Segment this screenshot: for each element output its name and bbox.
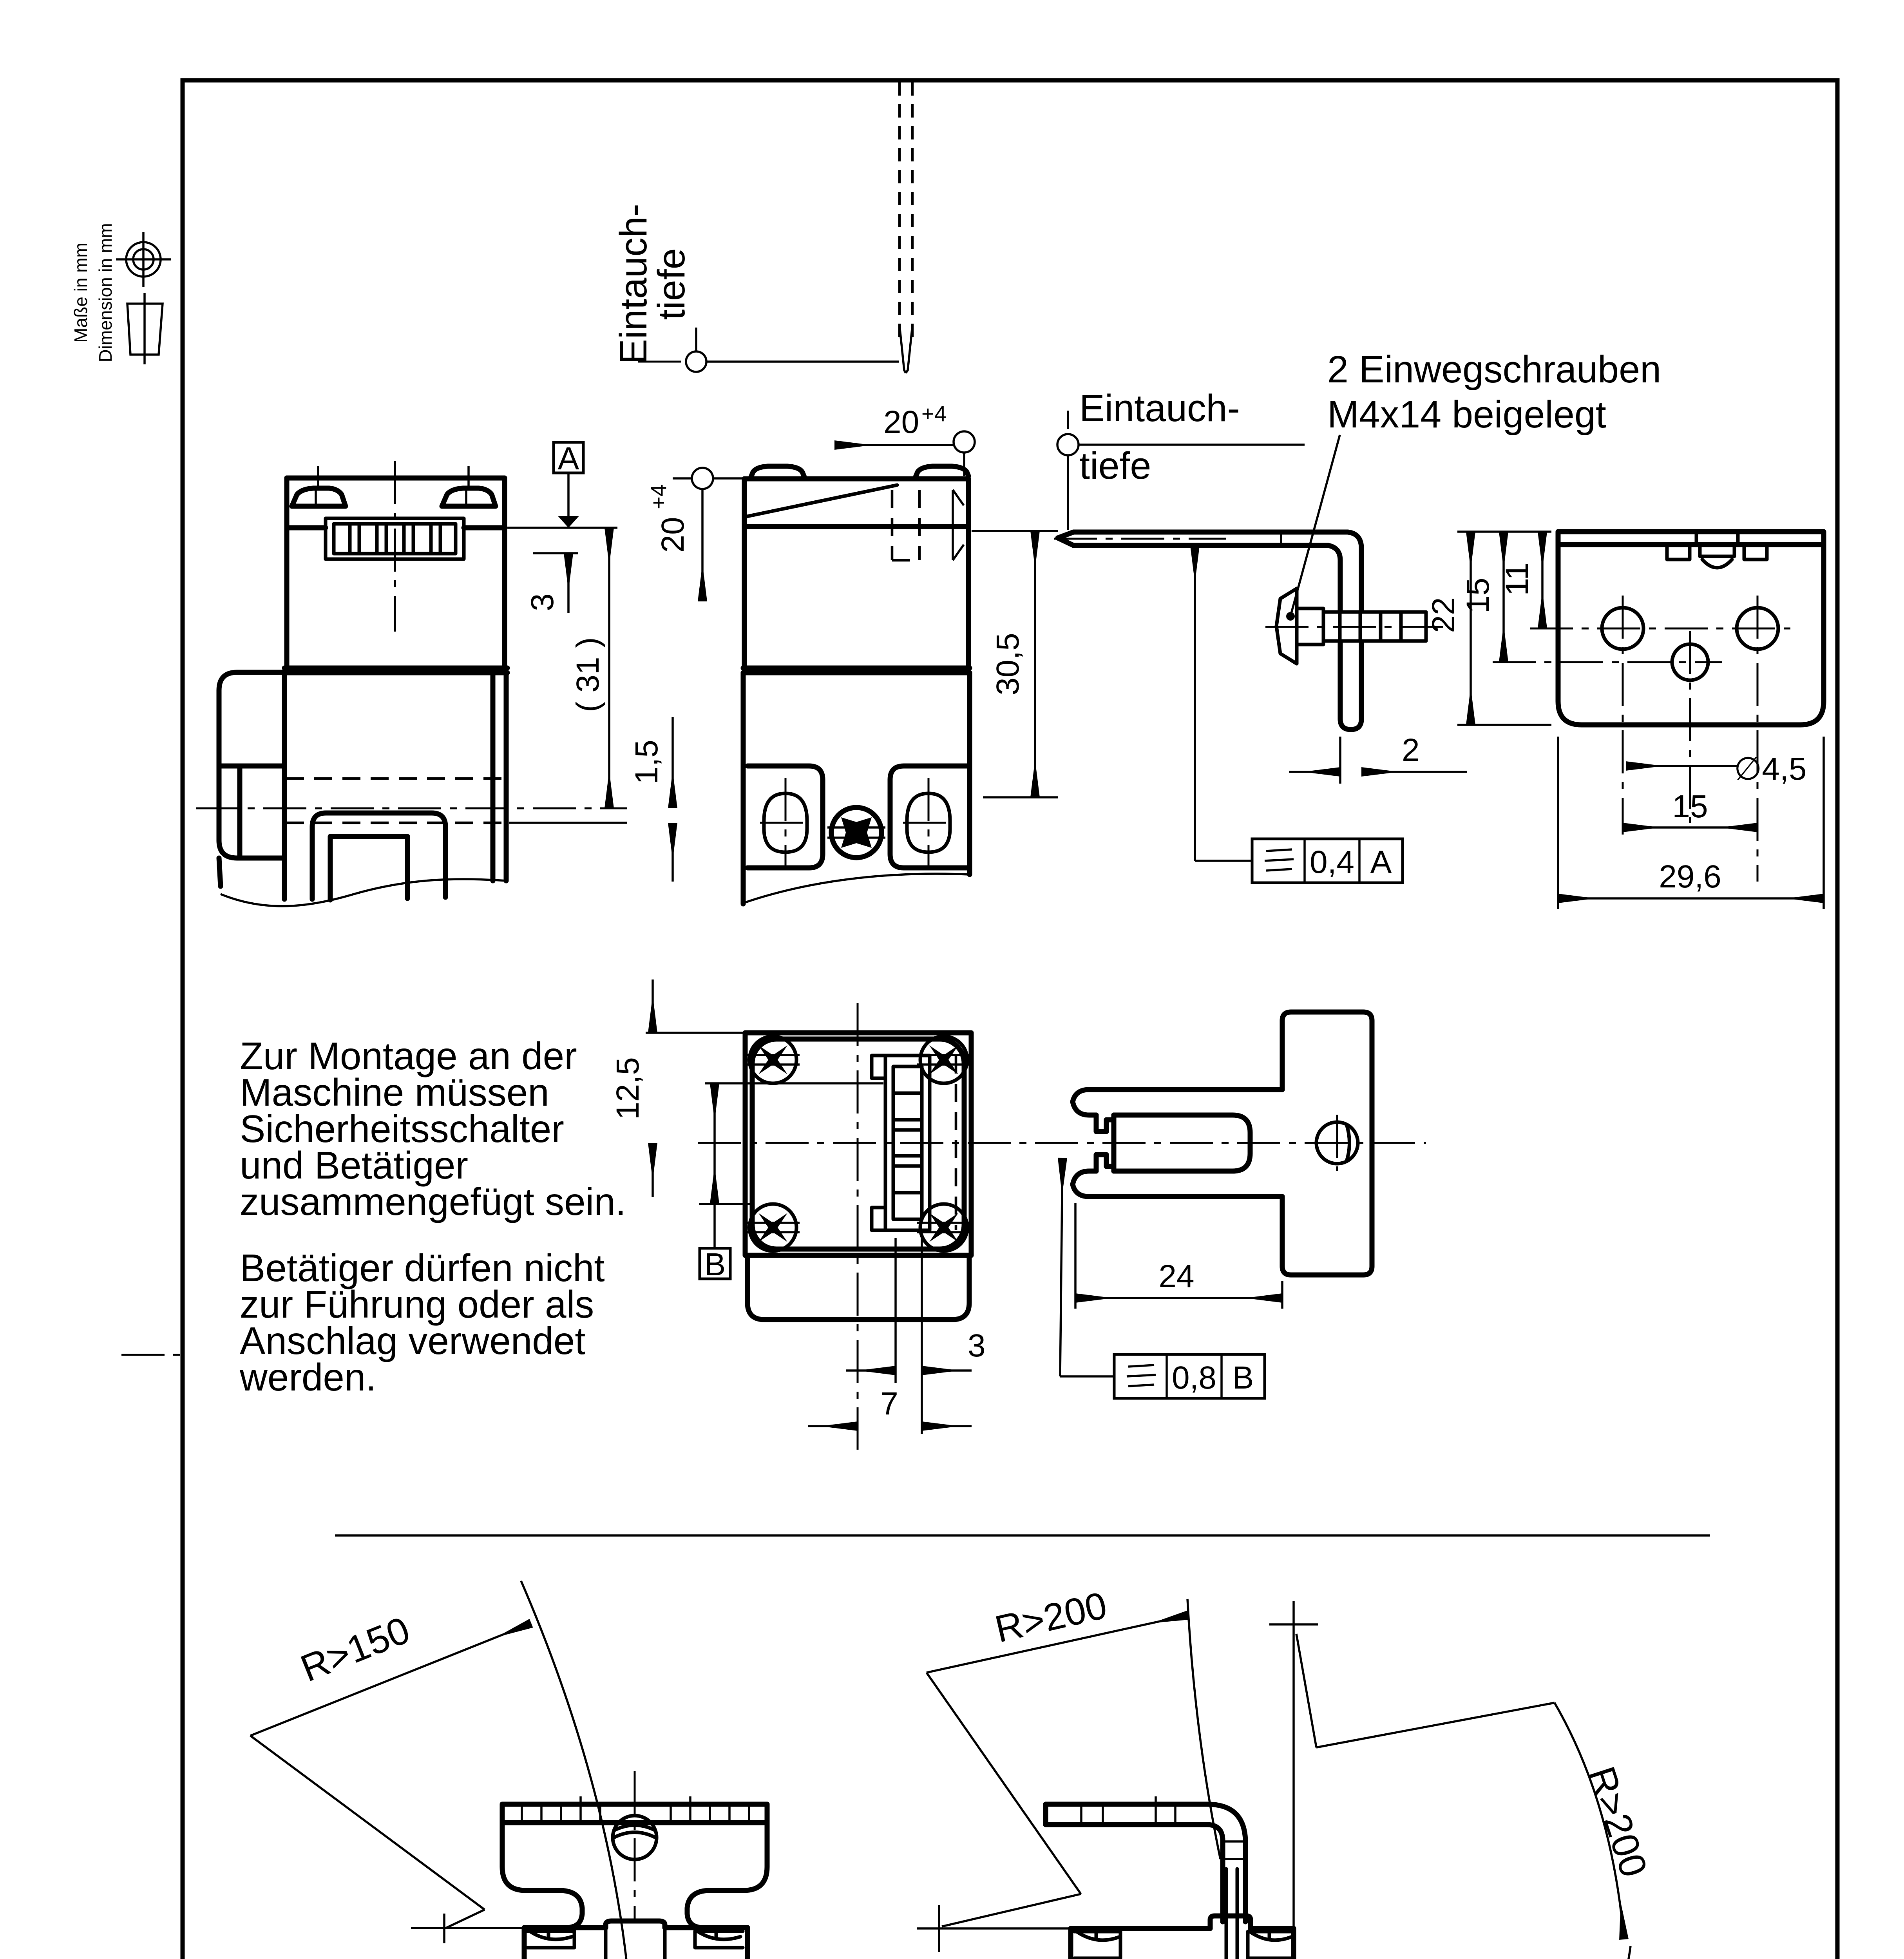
svg-text:zusammengefügt sein.: zusammengefügt sein. [240, 1180, 626, 1223]
svg-text:1,5: 1,5 [629, 740, 664, 784]
svg-text:3: 3 [525, 593, 560, 611]
svg-text:Maße in mm: Maße in mm [71, 243, 91, 343]
svg-text:12,5: 12,5 [610, 1057, 646, 1120]
svg-text:A: A [1370, 844, 1392, 880]
svg-text:B: B [704, 1247, 726, 1282]
svg-text:11: 11 [1499, 562, 1535, 596]
svg-text:+4: +4 [921, 401, 947, 426]
svg-text:7: 7 [880, 1386, 898, 1421]
svg-text:2 Einwegschrauben: 2 Einwegschrauben [1327, 348, 1661, 391]
svg-text:M4x14 beigelegt: M4x14 beigelegt [1327, 393, 1606, 436]
svg-text:Eintauch-: Eintauch- [612, 204, 655, 364]
svg-text:15: 15 [1460, 578, 1496, 613]
svg-text:3: 3 [968, 1328, 986, 1363]
svg-text:tiefe: tiefe [1079, 444, 1151, 487]
svg-text:Eintauch-: Eintauch- [1079, 387, 1240, 429]
svg-text:20: 20 [655, 517, 691, 552]
svg-text:15: 15 [1672, 789, 1708, 824]
svg-text:24: 24 [1158, 1258, 1194, 1294]
svg-text:∅4,5: ∅4,5 [1734, 751, 1806, 787]
svg-text:22: 22 [1426, 597, 1461, 633]
svg-text:werden.: werden. [239, 1356, 376, 1399]
svg-text:20: 20 [883, 404, 919, 440]
svg-text:2: 2 [1402, 732, 1420, 768]
svg-text:30,5: 30,5 [990, 633, 1026, 695]
svg-text:A: A [558, 441, 579, 476]
svg-text:0,8: 0,8 [1172, 1360, 1216, 1396]
svg-text:Dimension in mm: Dimension in mm [95, 223, 116, 362]
svg-text:B: B [1233, 1360, 1254, 1396]
svg-text:+4: +4 [646, 484, 671, 509]
svg-text:0,4: 0,4 [1310, 844, 1354, 880]
svg-text:29,6: 29,6 [1659, 859, 1721, 894]
svg-text:tiefe: tiefe [650, 248, 693, 320]
svg-text:( 31 ): ( 31 ) [570, 637, 606, 712]
